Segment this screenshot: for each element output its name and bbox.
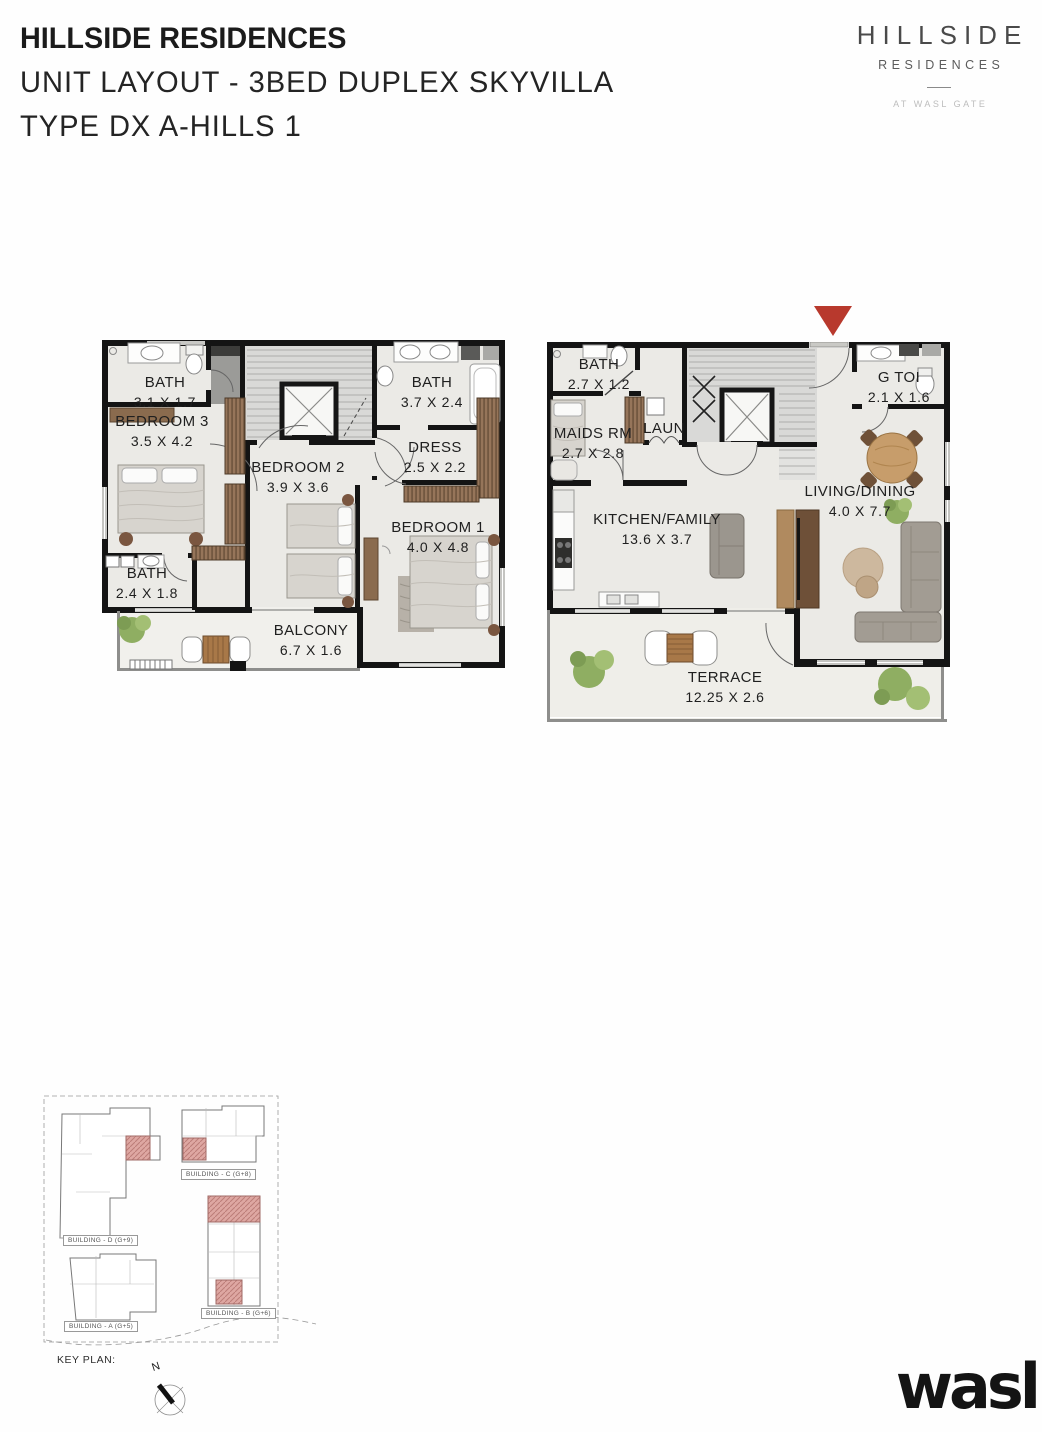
- elevator-icon: [282, 384, 336, 440]
- tv-console-icon: [777, 510, 819, 608]
- room-label-bath-b: BATH 3.7 X 2.4: [401, 373, 463, 411]
- brand-logo-divider: [927, 87, 951, 88]
- room-label-gtoi: G TOI 2.1 X 1.6: [868, 368, 930, 406]
- room-label-dress: DRESS 2.5 X 2.2: [404, 438, 466, 476]
- building-c-outline: [182, 1106, 264, 1162]
- dining-table-icon: [859, 428, 924, 490]
- brand-logo-tagline: AT WASL GATE: [847, 99, 1034, 109]
- building-a-label: BUILDING - A (G+5): [64, 1321, 138, 1332]
- lower-floor-plan: BATH 2.7 X 1.2 G TOI 2.1 X 1.6 MAIDS RM …: [547, 342, 950, 727]
- building-c-label: BUILDING - C (G+8): [181, 1169, 256, 1180]
- room-label-bath: BATH 2.7 X 1.2: [568, 355, 630, 393]
- header: HILLSIDE RESIDENCES UNIT LAYOUT - 3BED D…: [20, 22, 633, 154]
- room-label-bedroom2: BEDROOM 2 3.9 X 3.6: [251, 458, 345, 496]
- compass-icon: [146, 1372, 192, 1420]
- room-label-bedroom3: BEDROOM 3 3.5 X 4.2: [115, 412, 209, 450]
- room-label-maids: MAIDS RM 2.7 X 2.8: [554, 424, 632, 462]
- building-b-label: BUILDING - B (G+6): [201, 1308, 276, 1319]
- wasl-logo: wasl: [896, 1356, 1037, 1418]
- entrance-marker-icon: [814, 306, 852, 336]
- elevator-icon: [722, 390, 772, 446]
- building-a-outline: [70, 1254, 156, 1320]
- upper-floor-plan: BATH 3.1 X 1.7 BATH 3.7 X 2.4 BEDROOM 3 …: [102, 340, 505, 675]
- room-label-laun: LAUN: [643, 419, 685, 439]
- building-d-outline: [60, 1108, 160, 1238]
- room-label-bath-c: BATH 2.4 X 1.8: [116, 564, 178, 602]
- brand-logo-subtitle: RESIDENCES: [847, 58, 1036, 72]
- building-b-outline: [208, 1196, 260, 1306]
- room-label-bedroom1: BEDROOM 1 4.0 X 4.8: [391, 518, 485, 556]
- key-plan-title: KEY PLAN:: [57, 1354, 116, 1366]
- room-label-living: LIVING/DINING 4.0 X 7.7: [804, 482, 915, 520]
- brand-logo: HILLSIDE RESIDENCES AT WASL GATE: [847, 20, 1031, 109]
- floorplan-sheet: HILLSIDE RESIDENCES UNIT LAYOUT - 3BED D…: [0, 0, 1042, 1432]
- brand-logo-title: HILLSIDE: [847, 20, 1038, 51]
- terrace-furniture-icon: [645, 631, 717, 665]
- building-d-label: BUILDING - D (G+9): [63, 1235, 138, 1246]
- room-label-balcony: BALCONY 6.7 X 1.6: [274, 621, 349, 659]
- key-plan-drawing: [40, 1092, 320, 1357]
- room-label-bath-a: BATH 3.1 X 1.7: [134, 373, 196, 411]
- room-label-kitchen: KITCHEN/FAMILY 13.6 X 3.7: [593, 510, 721, 548]
- unit-type-line: TYPE DX A-HILLS 1: [20, 110, 614, 144]
- unit-layout-subtitle: UNIT LAYOUT - 3BED DUPLEX SKYVILLA: [20, 66, 614, 100]
- room-label-terrace: TERRACE 12.25 X 2.6: [685, 668, 764, 706]
- washer-icon: [647, 398, 664, 415]
- page-title: HILLSIDE RESIDENCES: [20, 22, 608, 56]
